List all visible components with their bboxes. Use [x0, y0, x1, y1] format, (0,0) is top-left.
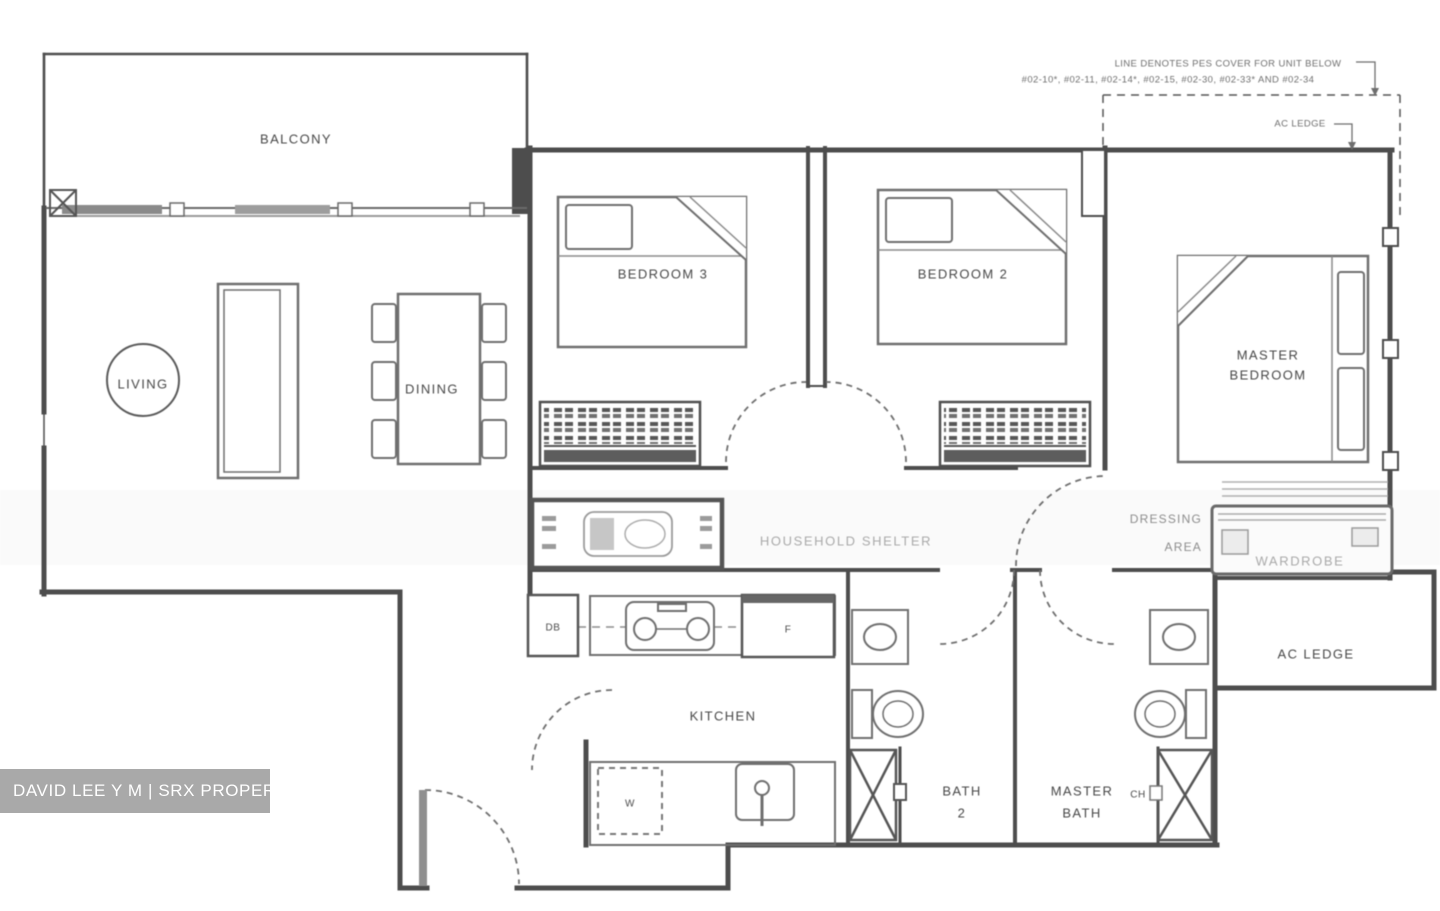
balcony-sliding-door	[46, 203, 527, 216]
master-bath-toilet	[1135, 690, 1206, 738]
door-arc-bath2	[940, 570, 1014, 644]
room-label-master-bath-1: MASTER	[1051, 783, 1114, 798]
entry-door-leaf	[419, 790, 427, 886]
fixture-label-ch: CH	[1130, 790, 1145, 801]
ac-ledge-leader	[1334, 124, 1356, 150]
dressing-text-2: AREA	[1165, 540, 1202, 554]
wardrobe-bedroom3	[540, 402, 700, 466]
watermark-text: DAVID LEE Y M | SRX PROPERTY	[13, 781, 298, 801]
wardrobe-bedroom2	[940, 402, 1090, 466]
ac-ledge-callout: AC LEDGE	[1274, 119, 1325, 130]
room-label-bedroom3: BEDROOM 3	[618, 266, 709, 281]
pes-note-line1: LINE DENOTES PES COVER FOR UNIT BELOW	[1115, 59, 1342, 70]
dining-table-set	[372, 294, 506, 464]
room-label-ac-ledge: AC LEDGE	[1278, 646, 1355, 661]
room-label-dining: DINING	[405, 381, 459, 396]
room-label-master-bedroom-1: MASTER	[1237, 347, 1300, 362]
watermark: DAVID LEE Y M | SRX PROPERTY	[0, 769, 270, 813]
floor-plan-page: BALCONY LIVING DINING BEDROOM 3 BEDROOM …	[0, 0, 1440, 911]
ch-fitting	[1150, 786, 1162, 800]
kitchen-sink	[736, 764, 794, 826]
bath2-toilet	[852, 690, 923, 738]
fixture-label-fridge: F	[785, 625, 792, 636]
door-arc-bedroom2	[826, 382, 906, 462]
wardrobe-faint-text: WARDROBE	[1256, 553, 1345, 568]
room-label-bedroom2: BEDROOM 2	[918, 266, 1009, 281]
dressing-text-1: DRESSING	[1130, 512, 1202, 526]
master-bath-vanity	[1150, 610, 1208, 664]
room-label-bath2-1: BATH	[942, 783, 981, 798]
room-label-balcony: BALCONY	[260, 131, 332, 146]
door-arc-entry	[425, 790, 519, 884]
bath2-vanity	[852, 610, 908, 664]
shower-screen-tick	[894, 784, 906, 800]
door-arc-kitchen	[532, 690, 612, 770]
shaft-right	[1158, 750, 1212, 840]
room-label-master-bedroom-2: BEDROOM	[1230, 367, 1307, 382]
hallway-faint-text: HOUSEHOLD SHELTER	[760, 533, 932, 548]
sofa	[218, 284, 298, 478]
room-label-living: LIVING	[117, 376, 168, 391]
duct-column	[1082, 150, 1105, 216]
cooker-hob	[626, 602, 714, 650]
room-label-master-bath-2: BATH	[1062, 805, 1101, 820]
room-label-kitchen: KITCHEN	[690, 708, 757, 723]
pes-note-leader	[1356, 62, 1379, 96]
door-arc-master-bath	[1040, 570, 1114, 644]
shaft-left	[850, 750, 896, 840]
pes-note-line2: #02-10*, #02-11, #02-14*, #02-15, #02-30…	[1022, 75, 1315, 86]
room-label-bath2-2: 2	[958, 805, 967, 820]
household-shelter	[532, 500, 722, 568]
door-arc-bedroom3	[726, 382, 806, 462]
fixture-label-db: DB	[546, 623, 561, 634]
pes-cover-line	[1103, 95, 1400, 215]
fixture-label-washer: W	[625, 799, 635, 810]
